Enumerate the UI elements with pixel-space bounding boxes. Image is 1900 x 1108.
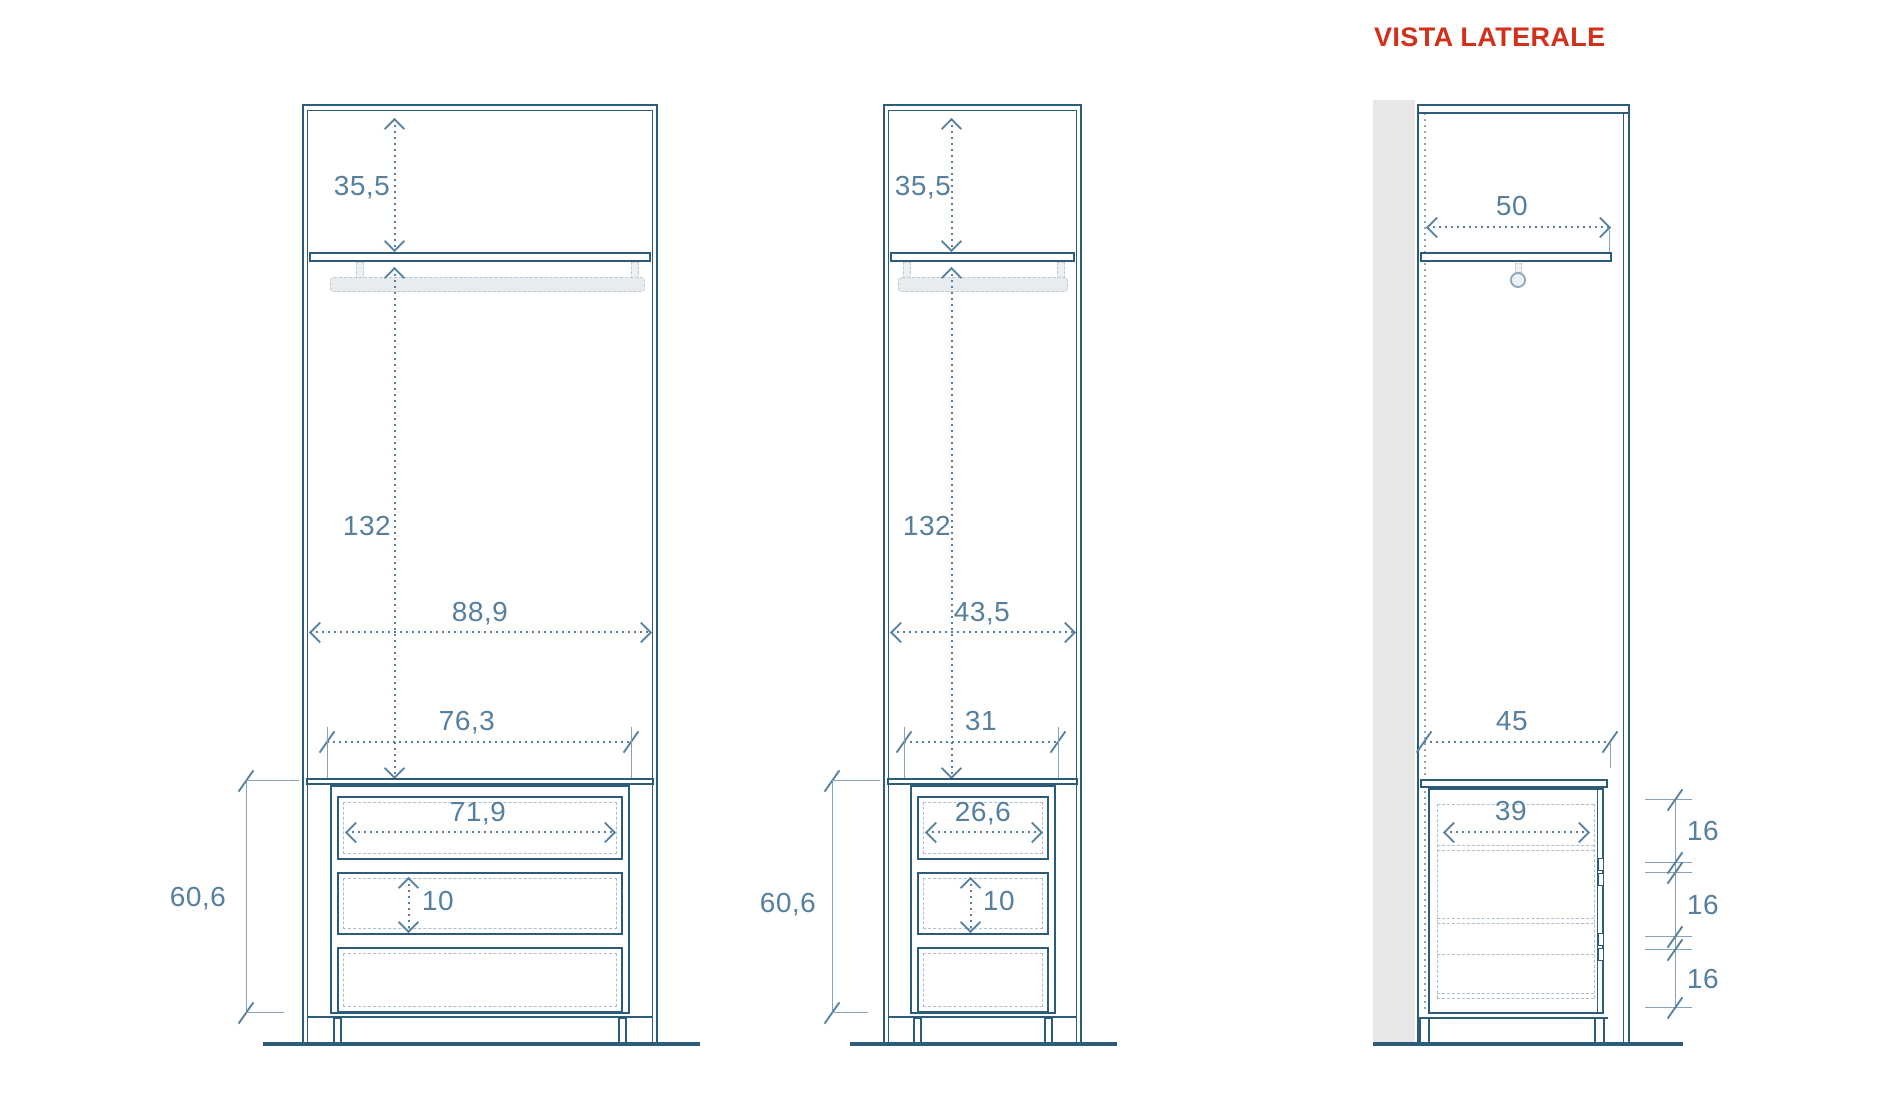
wardrobe-wide-shelf: [309, 252, 651, 262]
dim-label-drawer-height: 10: [983, 885, 1015, 917]
side-shelf: [1420, 252, 1612, 262]
drawer-runner-block: [1598, 948, 1604, 961]
dim-label-inner-width: 88,9: [452, 596, 509, 628]
side-back-panel-line: [1417, 104, 1419, 1044]
chest-top-panel-side: [1420, 779, 1608, 788]
drawer-2-inner-outline: [343, 878, 617, 929]
dim-line-inner-width: [310, 631, 650, 633]
extension-line: [1058, 727, 1059, 778]
dim-label-inner-width: 43,5: [954, 596, 1011, 628]
dim-label-hanging-height: 132: [903, 510, 951, 542]
dim-label-drawer-spacing-3: 16: [1687, 963, 1719, 995]
dim-label-top-gap: 35,5: [334, 170, 391, 202]
floor-line: [850, 1042, 1117, 1046]
dim-line-inner-depth: [1427, 226, 1609, 228]
dim-label-drawer-spacing-2: 16: [1687, 889, 1719, 921]
dim-label-chest-depth: 45: [1496, 705, 1528, 737]
dim-label-top-gap: 35,5: [895, 170, 952, 202]
extension-line: [246, 780, 299, 781]
drawer-2: [337, 872, 623, 935]
base-line: [1420, 1017, 1608, 1019]
dim-label-drawer-width: 71,9: [450, 796, 507, 828]
chest-top-panel: [306, 778, 654, 785]
dim-line-chest-width: [904, 741, 1058, 743]
extension-line: [832, 780, 880, 781]
dim-label-chest-width: 76,3: [439, 705, 496, 737]
hanging-rail: [898, 277, 1068, 292]
dim-line-chest-width: [327, 741, 631, 743]
dim-line-hanging-height: [394, 268, 396, 777]
dim-label-drawer-height: 10: [422, 885, 454, 917]
drawer-hidden-line: [1437, 918, 1594, 919]
drawer-hidden-line: [1437, 923, 1594, 924]
extension-line: [1645, 936, 1692, 937]
drawer-hidden-line: [1437, 850, 1594, 851]
base-foot-left: [333, 1017, 342, 1044]
base-foot-back: [1419, 1017, 1430, 1044]
drawer-runner-block: [1598, 858, 1604, 871]
dim-label-drawer-width: 26,6: [955, 796, 1012, 828]
dim-line-chest-height: [246, 781, 247, 1013]
drawer-runner-block: [1598, 933, 1604, 946]
extension-line: [1645, 949, 1692, 950]
dim-label-hanging-height: 132: [343, 510, 391, 542]
dim-line-inner-width: [891, 631, 1074, 633]
dim-label-drawer-spacing-1: 16: [1687, 815, 1719, 847]
dim-label-chest-height: 60,6: [760, 887, 817, 919]
extension-line: [1609, 230, 1610, 252]
drawer-hidden-line: [1437, 845, 1594, 846]
drawer-hidden-edge: [1594, 804, 1595, 998]
dim-label-chest-height: 60,6: [170, 881, 227, 913]
side-front-panel-line: [1628, 104, 1630, 1044]
extension-line: [1645, 862, 1692, 863]
base-line: [307, 1016, 653, 1018]
side-back-hidden-line: [1424, 113, 1426, 1013]
drawer-hidden-line: [1437, 954, 1594, 955]
dim-line-hanging-height: [951, 268, 953, 777]
extension-line: [1645, 1007, 1692, 1008]
extension-line: [1610, 742, 1611, 768]
dim-label-drawer-depth: 39: [1495, 795, 1527, 827]
dim-line-drawer-width: [346, 831, 614, 833]
drawer-3: [337, 947, 623, 1013]
base-foot-front: [1594, 1017, 1605, 1044]
floor-line: [1373, 1042, 1683, 1046]
base-foot-right: [618, 1017, 627, 1044]
drawer-hidden-line: [1437, 993, 1594, 994]
wardrobe-narrow-shelf: [890, 252, 1075, 262]
drawer-runner-block: [1598, 873, 1604, 886]
drawer-hidden-edge: [1437, 804, 1438, 998]
chest-front-inner-line: [1597, 788, 1598, 1014]
hanging-rail: [330, 277, 645, 292]
drawer-hidden-line: [1437, 998, 1594, 999]
drawer-3-inner-outline: [343, 953, 617, 1007]
technical-drawing-canvas: VISTA LATERALE 35,5 132 88,9 76,3 71,9 1…: [0, 0, 1900, 1108]
dim-line-drawer-spacing: [1675, 800, 1676, 1008]
dim-label-chest-width: 31: [965, 705, 997, 737]
base-foot-right: [1044, 1017, 1053, 1044]
side-top-panel: [1417, 104, 1630, 114]
extension-line: [904, 727, 905, 778]
extension-line: [832, 1012, 868, 1013]
drawer-3: [917, 947, 1049, 1013]
dim-line-chest-depth: [1424, 741, 1610, 743]
chest-top-panel: [887, 778, 1078, 785]
hanging-rail-end-icon: [1510, 272, 1526, 288]
floor-line: [263, 1042, 700, 1046]
wall-band: [1373, 100, 1415, 1044]
base-foot-left: [913, 1017, 922, 1044]
extension-line: [246, 1012, 284, 1013]
page-title: VISTA LATERALE: [1374, 22, 1606, 53]
extension-line: [1645, 799, 1692, 800]
extension-line: [631, 727, 632, 778]
arrow-right-icon: [1590, 217, 1611, 238]
dim-line-drawer-depth: [1444, 831, 1588, 833]
extension-line: [327, 727, 328, 778]
arrow-left-icon: [1426, 217, 1447, 238]
dim-line-chest-height: [832, 781, 833, 1013]
drawer-3-inner-outline: [923, 953, 1043, 1007]
side-front-panel-inner-line: [1623, 114, 1624, 1044]
dim-label-inner-depth: 50: [1496, 190, 1528, 222]
